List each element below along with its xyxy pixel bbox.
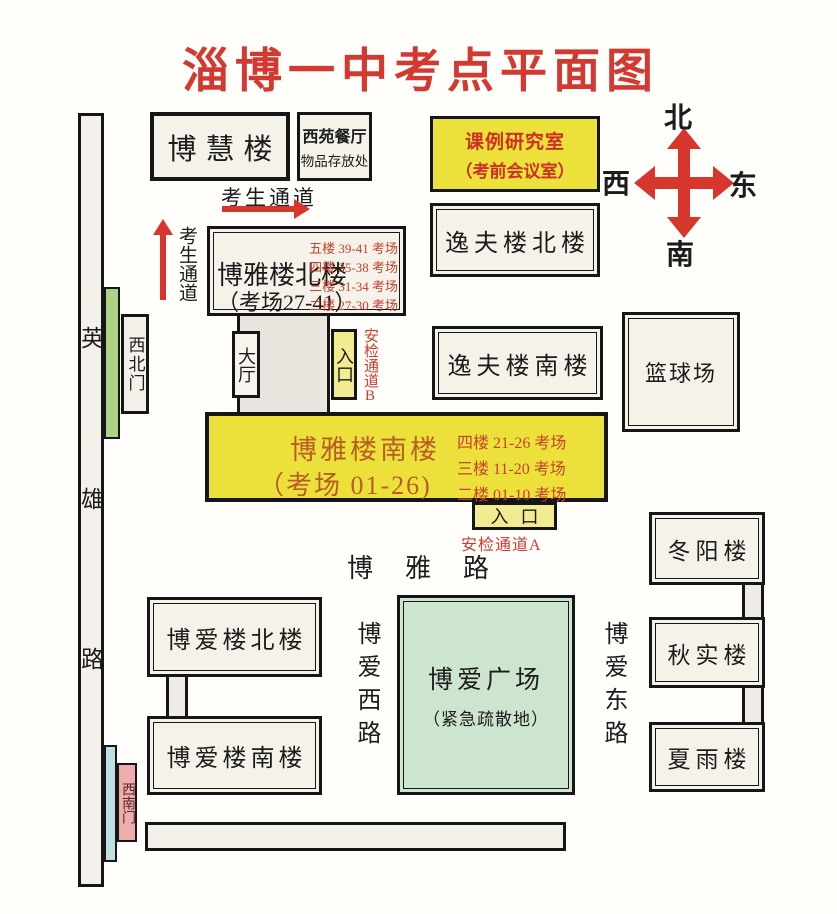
walkway-label-vertical: 考生通道 bbox=[176, 226, 197, 302]
road-yingxiong-char: 雄 bbox=[81, 480, 101, 514]
compass-south-label: 南 bbox=[666, 233, 694, 273]
compass-west-label: 西 bbox=[602, 162, 630, 202]
floor-line: 二楼 27-30 考场 bbox=[309, 298, 398, 313]
building-xiyuan-note: 物品存放处 bbox=[301, 150, 369, 170]
building-xiyuan-name: 西苑餐厅 bbox=[302, 123, 366, 147]
entrance-b: 入口 bbox=[331, 329, 357, 400]
entrance-a: 入口 bbox=[472, 502, 557, 530]
building-boya-south-floor-list: 四楼 21-26 考场 三楼 11-20 考场 二楼 01-10 考场 bbox=[457, 431, 566, 509]
corridor-east-1 bbox=[742, 585, 764, 617]
building-bohui: 博慧楼 bbox=[150, 112, 290, 181]
road-boai-west: 博爱西路 bbox=[349, 621, 384, 753]
keli-room-name: 课例研究室 bbox=[465, 127, 565, 154]
building-boai-south: 博爱楼南楼 bbox=[147, 716, 322, 795]
basketball-court: 篮球场 bbox=[622, 312, 740, 432]
compass-east-label: 东 bbox=[729, 164, 757, 204]
compass-north-label: 北 bbox=[664, 96, 692, 136]
building-dongyang: 冬阳楼 bbox=[649, 512, 765, 585]
building-boya-south: 博雅楼南楼 （考场 01-26) 四楼 21-26 考场 三楼 11-20 考场… bbox=[205, 412, 608, 502]
building-keli-room: 课例研究室 （考前会议室） bbox=[430, 116, 600, 192]
building-boya-north-floor-list: 五楼 39-41 考场 四楼 35-38 考场 三楼 31-34 考场 二楼 2… bbox=[309, 239, 398, 315]
building-boya-north: 博雅楼北楼 （考场27-41） 五楼 39-41 考场 四楼 35-38 考场 … bbox=[207, 226, 406, 316]
corridor-boai bbox=[166, 677, 188, 716]
building-yifu-north: 逸夫楼北楼 bbox=[430, 203, 600, 277]
road-yingxiong-char: 路 bbox=[81, 640, 101, 674]
security-channel-b-label: 安检通道B bbox=[362, 328, 378, 404]
road-yingxiong-char: 英 bbox=[81, 319, 101, 353]
boai-plaza-name: 博爱广场 bbox=[428, 660, 544, 696]
building-yifu-south: 逸夫楼南楼 bbox=[432, 326, 603, 400]
floor-line: 四楼 35-38 考场 bbox=[309, 260, 398, 275]
road-boya: 博雅路 bbox=[347, 548, 521, 585]
building-boai-north: 博爱楼北楼 bbox=[147, 597, 322, 677]
building-boya-south-name: 博雅楼南楼 bbox=[290, 428, 440, 467]
page-title: 淄博一中考点平面图 bbox=[182, 32, 659, 101]
building-xiayu: 夏雨楼 bbox=[649, 722, 765, 792]
road-yingxiong: 英 雄 路 bbox=[78, 113, 104, 887]
floor-line: 三楼 31-34 考场 bbox=[309, 279, 398, 294]
gate-green-strip bbox=[104, 287, 120, 439]
boai-plaza: 博爱广场 （紧急疏散地） bbox=[397, 595, 575, 795]
boai-plaza-note: （紧急疏散地） bbox=[423, 705, 549, 730]
keli-room-note: （考前会议室） bbox=[456, 157, 575, 182]
arrow-up-icon bbox=[160, 233, 166, 300]
road-boai-east: 博爱东路 bbox=[596, 621, 631, 753]
floor-line: 三楼 11-20 考场 bbox=[457, 461, 566, 478]
floor-line: 四楼 21-26 考场 bbox=[457, 435, 566, 452]
building-qiushi: 秋实楼 bbox=[649, 617, 765, 688]
building-boya-south-rooms: （考场 01-26) bbox=[258, 465, 432, 502]
building-hall: 大厅 bbox=[232, 331, 260, 398]
gate-southwest: 西南门 bbox=[117, 763, 137, 842]
arrow-right-head-icon bbox=[294, 199, 310, 219]
corridor-east-2 bbox=[742, 688, 764, 722]
compass-icon bbox=[634, 128, 734, 238]
arrow-right-icon bbox=[222, 206, 296, 212]
building-xiyuan-canteen: 西苑餐厅 物品存放处 bbox=[297, 112, 372, 181]
gate-northwest: 西北门 bbox=[121, 314, 149, 414]
campus-map: 淄博一中考点平面图 英 雄 路 西北门 博慧楼 西苑餐厅 物品存放处 考生通道 … bbox=[0, 0, 837, 914]
bottom-wall bbox=[145, 822, 566, 851]
gate-blue-strip bbox=[104, 745, 117, 862]
floor-line: 五楼 39-41 考场 bbox=[309, 241, 398, 256]
